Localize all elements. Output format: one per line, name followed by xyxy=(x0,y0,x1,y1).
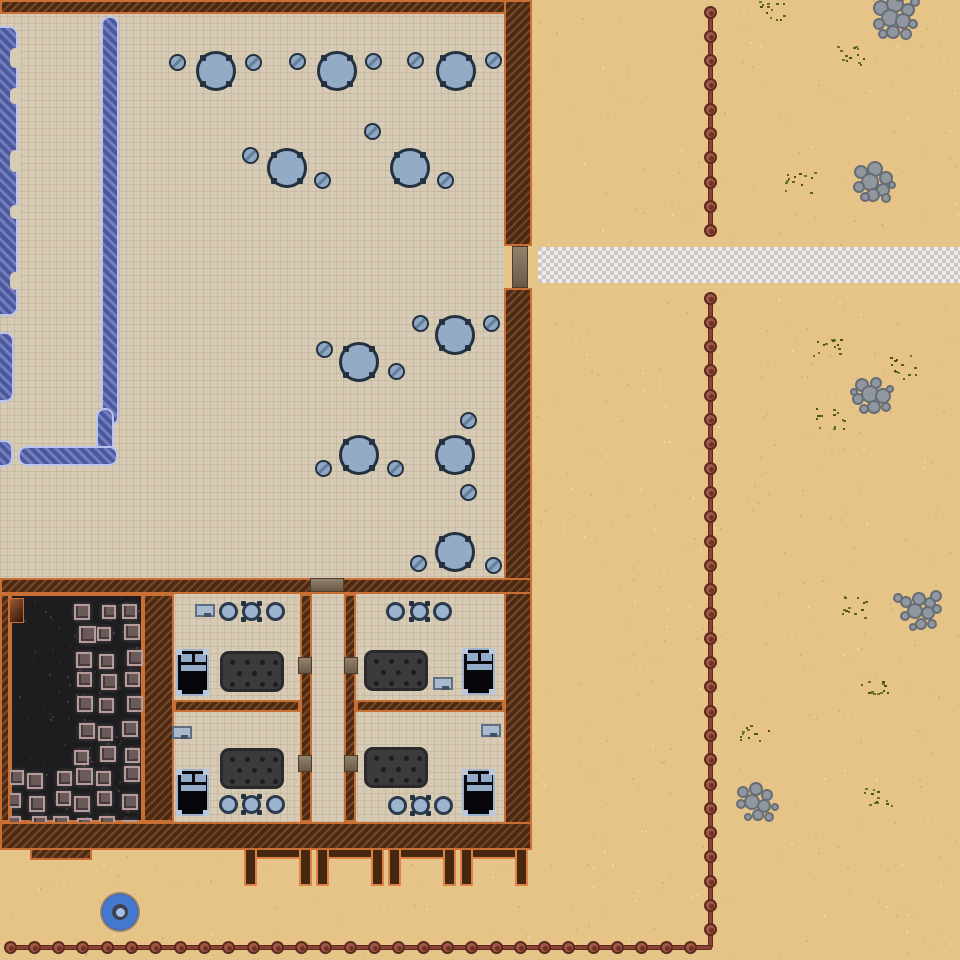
fence-post[interactable] xyxy=(295,941,308,954)
fence-post[interactable] xyxy=(704,176,717,189)
sand-speckle xyxy=(697,34,699,36)
bed-knob xyxy=(176,810,182,816)
fence-post[interactable] xyxy=(704,151,717,164)
fence-post[interactable] xyxy=(704,389,717,402)
fence-post[interactable] xyxy=(704,899,717,912)
wall xyxy=(143,594,174,822)
sand-speckle xyxy=(824,778,826,780)
sand-speckle xyxy=(679,703,681,705)
rug[interactable] xyxy=(364,747,428,788)
sand-speckle xyxy=(579,143,581,145)
sand-speckle xyxy=(71,903,73,905)
stool[interactable] xyxy=(410,555,427,572)
fence-post[interactable] xyxy=(704,826,717,839)
sand-speckle xyxy=(794,214,796,216)
fence-post[interactable] xyxy=(704,224,717,237)
grass-blade xyxy=(742,731,745,733)
soil-speckle xyxy=(27,715,29,717)
fence-post[interactable] xyxy=(704,103,717,116)
fence-post[interactable] xyxy=(704,200,717,213)
sand-speckle xyxy=(669,792,671,794)
grass-blade xyxy=(853,47,856,49)
sand-speckle xyxy=(623,99,625,101)
dresser-slot xyxy=(490,733,497,737)
sand-speckle xyxy=(596,327,598,329)
stool[interactable] xyxy=(460,484,477,501)
grass-blade xyxy=(863,58,865,60)
grass-blade xyxy=(833,414,836,416)
sand-speckle xyxy=(140,955,142,957)
sand-speckle xyxy=(724,289,726,291)
sand-speckle xyxy=(698,200,700,202)
fence-post[interactable] xyxy=(174,941,187,954)
rug[interactable] xyxy=(364,650,428,691)
fence-post[interactable] xyxy=(222,941,235,954)
grass-blade xyxy=(864,617,867,619)
crate[interactable] xyxy=(98,726,113,741)
fence-post[interactable] xyxy=(704,850,717,863)
crate[interactable] xyxy=(76,652,92,668)
stool[interactable] xyxy=(315,460,332,477)
fence-post-cap xyxy=(422,946,427,951)
fence-post[interactable] xyxy=(319,941,332,954)
rug-dot xyxy=(381,767,386,772)
sand-speckle xyxy=(752,509,754,511)
bed-knob xyxy=(462,648,468,654)
soil-speckle xyxy=(43,761,45,763)
rug-dot xyxy=(374,681,379,686)
fence-post[interactable] xyxy=(52,941,65,954)
crate[interactable] xyxy=(124,624,140,640)
rock-cluster[interactable] xyxy=(842,366,902,426)
fence-post[interactable] xyxy=(704,486,717,499)
blueprint-notch xyxy=(10,150,20,172)
fence-post[interactable] xyxy=(704,923,717,936)
grass-blade xyxy=(810,192,813,194)
rock-cluster[interactable] xyxy=(843,152,903,212)
table-leg xyxy=(200,81,206,87)
stool[interactable] xyxy=(245,54,262,71)
fence-post-cap xyxy=(709,467,714,472)
sand-speckle xyxy=(801,376,803,378)
table-leg xyxy=(465,439,471,445)
rug[interactable] xyxy=(220,748,284,789)
grass-blade xyxy=(840,339,843,341)
fence-post[interactable] xyxy=(684,941,697,954)
crate[interactable] xyxy=(56,791,71,806)
stool[interactable] xyxy=(316,341,333,358)
fence-post-cap xyxy=(709,710,714,715)
fence-post-cap xyxy=(252,946,257,951)
fence-post[interactable] xyxy=(704,6,717,19)
table-leg xyxy=(439,319,445,325)
stool[interactable] xyxy=(289,53,306,70)
fence-post[interactable] xyxy=(704,30,717,43)
sand-speckle xyxy=(940,856,942,858)
fence-post[interactable] xyxy=(704,462,717,475)
fence-post[interactable] xyxy=(198,941,211,954)
fence-post[interactable] xyxy=(704,875,717,888)
sand-speckle xyxy=(538,405,540,407)
stool[interactable] xyxy=(485,557,502,574)
fence-post[interactable] xyxy=(704,292,717,305)
grass-tuft[interactable] xyxy=(783,169,817,195)
fence-post[interactable] xyxy=(704,753,717,766)
pot-tab xyxy=(426,795,431,800)
stool[interactable] xyxy=(407,52,424,69)
stool[interactable] xyxy=(387,460,404,477)
sand-speckle xyxy=(700,549,702,551)
crate[interactable] xyxy=(77,696,93,712)
dresser[interactable] xyxy=(481,724,501,737)
crate[interactable] xyxy=(122,721,138,737)
fence-post-cap xyxy=(709,108,714,113)
crate[interactable] xyxy=(74,604,90,620)
sand-speckle xyxy=(99,901,101,903)
dresser[interactable] xyxy=(195,604,215,617)
sand-speckle xyxy=(586,525,588,527)
bed-sheet xyxy=(467,664,492,670)
soil-speckle xyxy=(35,652,37,654)
bed[interactable] xyxy=(462,769,495,816)
sand-speckle xyxy=(789,125,791,127)
fence-post[interactable] xyxy=(149,941,162,954)
grass-blade xyxy=(845,55,848,57)
sand-speckle xyxy=(686,178,688,180)
fence-post[interactable] xyxy=(704,437,717,450)
grass-tuft[interactable] xyxy=(861,785,895,811)
fence-post[interactable] xyxy=(704,705,717,718)
sand-speckle xyxy=(216,860,218,862)
fence-post[interactable] xyxy=(704,340,717,353)
fence-post[interactable] xyxy=(392,941,405,954)
stool[interactable] xyxy=(388,363,405,380)
soil-speckle xyxy=(13,704,15,706)
sand-speckle xyxy=(85,954,87,956)
sand-speckle xyxy=(760,81,762,83)
bed[interactable] xyxy=(176,769,209,816)
sand-speckle xyxy=(841,690,843,692)
sand-speckle xyxy=(847,716,849,718)
stool[interactable] xyxy=(485,52,502,69)
grass-blade xyxy=(868,681,871,683)
fence-post[interactable] xyxy=(101,941,114,954)
bed[interactable] xyxy=(462,648,495,695)
crate[interactable] xyxy=(96,771,111,786)
crate[interactable] xyxy=(122,604,137,619)
plant-pot[interactable] xyxy=(433,602,452,621)
grass-blade xyxy=(813,355,815,357)
stool[interactable] xyxy=(365,53,382,70)
fence-post[interactable] xyxy=(704,559,717,572)
stool[interactable] xyxy=(314,172,331,189)
pot-tab xyxy=(410,795,415,800)
grass-blade xyxy=(887,692,889,694)
soil-speckle xyxy=(49,713,51,715)
fence-post[interactable] xyxy=(704,680,717,693)
sand-speckle xyxy=(575,337,577,339)
bed-pillow xyxy=(481,774,492,782)
fence-post[interactable] xyxy=(704,778,717,791)
fence-rail[interactable] xyxy=(708,10,713,232)
fence-post[interactable] xyxy=(704,729,717,742)
sand-speckle xyxy=(643,389,645,391)
wall-blueprint xyxy=(0,332,14,402)
grass-tuft[interactable] xyxy=(835,45,869,71)
sand-speckle xyxy=(924,735,926,737)
plant-pot[interactable] xyxy=(388,796,407,815)
sand-speckle xyxy=(942,362,944,364)
crate[interactable] xyxy=(99,654,114,669)
sand-speckle xyxy=(40,888,42,890)
grass-blade xyxy=(848,607,851,609)
rock-cluster[interactable] xyxy=(865,0,925,46)
grass-blade xyxy=(840,50,843,52)
rug-dot xyxy=(411,767,416,772)
bed-knob xyxy=(176,769,182,775)
rock xyxy=(859,404,869,414)
sand-speckle xyxy=(765,472,767,474)
sand-speckle xyxy=(571,908,573,910)
crate[interactable] xyxy=(97,791,112,806)
fence-post[interactable] xyxy=(490,941,503,954)
rock xyxy=(764,812,774,822)
crate[interactable] xyxy=(79,626,96,643)
grass-tuft[interactable] xyxy=(811,332,845,358)
rug-dot xyxy=(260,757,265,762)
pot-tab xyxy=(257,617,262,622)
crate[interactable] xyxy=(125,672,140,687)
crate[interactable] xyxy=(122,794,138,810)
stool[interactable] xyxy=(364,123,381,140)
sand-speckle xyxy=(664,640,666,642)
sand-speckle xyxy=(588,329,590,331)
fence-post[interactable] xyxy=(704,54,717,67)
grass-blade xyxy=(846,60,848,62)
grass-tuft[interactable] xyxy=(861,675,895,701)
fence-post-cap xyxy=(130,946,135,951)
sand-speckle xyxy=(414,905,416,907)
grass-blade xyxy=(832,340,835,342)
sand-speckle xyxy=(602,67,604,69)
fence-post[interactable] xyxy=(465,941,478,954)
grass-blade xyxy=(780,19,782,21)
soil-speckle xyxy=(43,707,45,709)
table-leg xyxy=(343,346,349,352)
rock xyxy=(860,192,870,202)
fence-post[interactable] xyxy=(514,941,527,954)
crate[interactable] xyxy=(76,768,93,785)
rock xyxy=(850,388,858,396)
wall-blueprint xyxy=(0,440,13,467)
stool[interactable] xyxy=(437,172,454,189)
table-leg xyxy=(439,536,445,542)
fence-post[interactable] xyxy=(704,802,717,815)
plant-pot[interactable] xyxy=(266,795,285,814)
plant-pot[interactable] xyxy=(219,795,238,814)
sand-speckle xyxy=(949,157,951,159)
sand-speckle xyxy=(855,759,857,761)
wall xyxy=(344,594,356,822)
crate[interactable] xyxy=(77,672,92,687)
sand-speckle xyxy=(666,626,668,628)
fence-post[interactable] xyxy=(704,583,717,596)
fence-post[interactable] xyxy=(704,656,717,669)
fence-post[interactable] xyxy=(4,941,17,954)
crate[interactable] xyxy=(74,796,90,812)
fence-post[interactable] xyxy=(562,941,575,954)
table-leg xyxy=(369,372,375,378)
sand-speckle xyxy=(920,786,922,788)
rock-cluster[interactable] xyxy=(890,582,950,642)
grass-tuft[interactable] xyxy=(740,719,774,745)
table-leg xyxy=(394,152,400,158)
fence-post[interactable] xyxy=(704,510,717,523)
door[interactable] xyxy=(344,755,358,772)
sand-speckle xyxy=(594,775,596,777)
pot-tab xyxy=(425,601,430,606)
porch-leg xyxy=(460,846,473,886)
crate[interactable] xyxy=(124,766,140,782)
sand-speckle xyxy=(659,586,661,588)
fence-post[interactable] xyxy=(28,941,41,954)
fence-post[interactable] xyxy=(368,941,381,954)
door[interactable] xyxy=(310,578,344,592)
soil-speckle xyxy=(28,720,30,722)
stool[interactable] xyxy=(412,315,429,332)
crate[interactable] xyxy=(102,605,116,619)
dresser[interactable] xyxy=(433,677,453,690)
fence-post-cap xyxy=(709,515,714,520)
crate[interactable] xyxy=(101,674,117,690)
fence-post[interactable] xyxy=(271,941,284,954)
door[interactable] xyxy=(512,246,528,288)
sand-speckle xyxy=(678,489,680,491)
door[interactable] xyxy=(298,755,312,772)
crate[interactable] xyxy=(97,627,111,641)
crate[interactable] xyxy=(127,696,143,712)
crate[interactable] xyxy=(27,773,43,789)
sand-speckle xyxy=(681,149,683,151)
fence-post[interactable] xyxy=(417,941,430,954)
plant-pot[interactable] xyxy=(266,602,285,621)
sand-speckle xyxy=(557,399,559,401)
crate[interactable] xyxy=(9,770,24,785)
sand-speckle xyxy=(670,829,672,831)
crate[interactable] xyxy=(29,796,45,812)
sand-speckle xyxy=(949,835,951,837)
fence-post-cap xyxy=(446,946,451,951)
sand-speckle xyxy=(768,493,770,495)
sand-speckle xyxy=(940,885,942,887)
sand-speckle xyxy=(602,230,604,232)
rock-cluster[interactable] xyxy=(728,772,788,832)
fence-post[interactable] xyxy=(704,78,717,91)
grass-blade xyxy=(914,367,917,369)
fence-post[interactable] xyxy=(344,941,357,954)
table-leg xyxy=(369,439,375,445)
sand-speckle xyxy=(162,937,164,939)
crate[interactable] xyxy=(74,750,89,765)
sand-speckle xyxy=(612,522,614,524)
fence-post[interactable] xyxy=(704,632,717,645)
fence-post[interactable] xyxy=(704,607,717,620)
fence-post[interactable] xyxy=(704,413,717,426)
sand-speckle xyxy=(634,601,636,603)
rug-dot xyxy=(252,768,257,773)
grass-blade xyxy=(877,797,880,799)
stool[interactable] xyxy=(460,412,477,429)
grass-tuft[interactable] xyxy=(758,0,792,25)
fence-post-cap xyxy=(709,588,714,593)
crate[interactable] xyxy=(100,746,116,762)
fence-post[interactable] xyxy=(538,941,551,954)
stool[interactable] xyxy=(169,54,186,71)
fence-post[interactable] xyxy=(704,127,717,140)
grass-blade xyxy=(750,725,753,727)
soil-speckle xyxy=(72,650,74,652)
sand-speckle xyxy=(940,42,942,44)
fence-post[interactable] xyxy=(660,941,673,954)
crate[interactable] xyxy=(79,723,95,739)
fence-post[interactable] xyxy=(704,316,717,329)
soil-speckle xyxy=(34,601,36,603)
door[interactable] xyxy=(298,657,312,674)
grass-blade xyxy=(857,597,859,599)
crate[interactable] xyxy=(57,771,72,786)
rug[interactable] xyxy=(220,651,284,692)
dresser[interactable] xyxy=(172,726,192,739)
stool[interactable] xyxy=(242,147,259,164)
crate[interactable] xyxy=(127,650,143,666)
sand-speckle xyxy=(918,546,920,548)
fence-post[interactable] xyxy=(125,941,138,954)
bed[interactable] xyxy=(176,649,209,696)
sand-speckle xyxy=(572,325,574,327)
grass-tuft[interactable] xyxy=(838,595,872,621)
plant-pot[interactable] xyxy=(219,602,238,621)
door[interactable] xyxy=(344,657,358,674)
sand-speckle xyxy=(839,96,841,98)
plant-pot[interactable] xyxy=(434,796,453,815)
sand-speckle xyxy=(730,952,732,954)
grass-blade xyxy=(908,374,911,376)
rock xyxy=(888,181,896,189)
sand-speckle xyxy=(645,642,647,644)
fence-post[interactable] xyxy=(587,941,600,954)
crate[interactable] xyxy=(125,748,140,763)
fence-post[interactable] xyxy=(247,941,260,954)
fence-post[interactable] xyxy=(704,364,717,377)
fence-post[interactable] xyxy=(441,941,454,954)
crate[interactable] xyxy=(99,698,114,713)
grass-blade xyxy=(817,341,819,343)
sand-speckle xyxy=(831,393,833,395)
sand-speckle xyxy=(518,906,520,908)
fence-post[interactable] xyxy=(76,941,89,954)
sand-speckle xyxy=(840,244,842,246)
plant-pot[interactable] xyxy=(386,602,405,621)
sand-speckle xyxy=(943,411,945,413)
grass-blade xyxy=(816,418,818,420)
fence-post[interactable] xyxy=(704,535,717,548)
stool[interactable] xyxy=(483,315,500,332)
sand-speckle xyxy=(586,354,588,356)
fence-post[interactable] xyxy=(635,941,648,954)
fence-post[interactable] xyxy=(611,941,624,954)
fence-post-cap xyxy=(709,807,714,812)
sand-speckle xyxy=(550,865,552,867)
